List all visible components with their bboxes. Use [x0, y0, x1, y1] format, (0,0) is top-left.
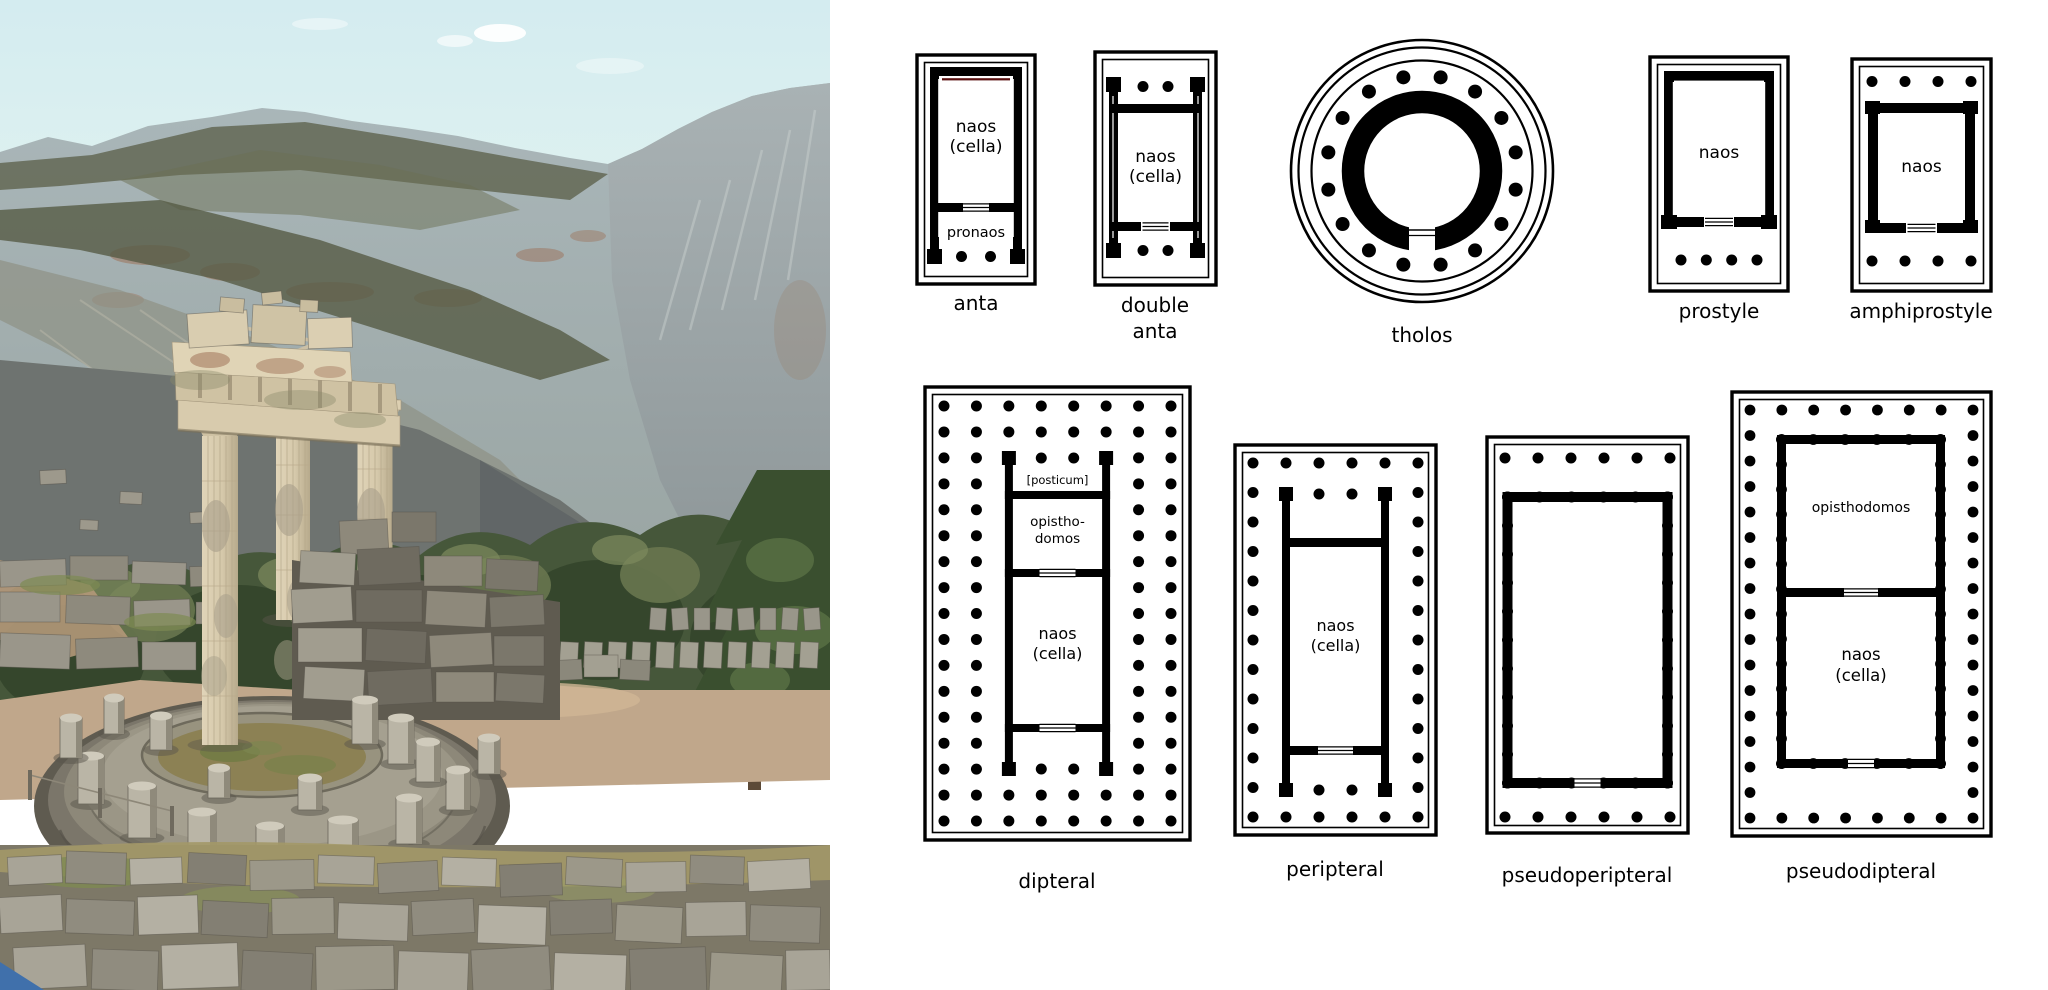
- floor-plan-pseudodipteral: opisthodomosnaos(cella): [1730, 390, 1993, 838]
- dipteral-plan-drawing: [posticum]opistho-domosnaos(cella): [923, 385, 1192, 842]
- floor-plan-prostyle: naos: [1648, 55, 1790, 293]
- plan-label-dipteral: dipteral: [1018, 868, 1095, 894]
- peripteral-plan-drawing: naos(cella): [1233, 443, 1438, 837]
- plan-label-tholos: tholos: [1392, 322, 1453, 348]
- floor-plan-anta: naos(cella)pronaos: [915, 53, 1037, 286]
- svg-text:domos: domos: [1035, 531, 1080, 547]
- plan-label-pseudoperipteral: pseudoperipteral: [1502, 862, 1673, 888]
- amphiprostyle-plan-drawing: naos: [1850, 57, 1993, 293]
- plan-label-pseudodipteral: pseudodipteral: [1786, 858, 1936, 884]
- anta-plan-drawing: naos(cella)pronaos: [915, 53, 1037, 286]
- floor-plan-double-anta: naos(cella): [1093, 50, 1218, 287]
- prostyle-plan-drawing: naos: [1648, 55, 1790, 293]
- svg-text:naos: naos: [1038, 624, 1076, 643]
- svg-text:opistho-: opistho-: [1030, 514, 1085, 530]
- svg-text:[posticum]: [posticum]: [1027, 473, 1089, 487]
- delphi-ruins-photo: [0, 0, 830, 990]
- svg-text:(cella): (cella): [1033, 644, 1083, 663]
- plan-label-anta: anta: [953, 290, 998, 316]
- floor-plan-peripteral: naos(cella): [1233, 443, 1438, 837]
- plan-label-double-anta: double anta: [1121, 292, 1189, 344]
- svg-text:naos: naos: [1316, 616, 1354, 635]
- svg-text:(cella): (cella): [1129, 167, 1182, 187]
- plan-label-prostyle: prostyle: [1679, 298, 1760, 324]
- svg-text:naos: naos: [1135, 147, 1176, 167]
- floor-plan-pseudoperipteral: [1485, 435, 1690, 835]
- svg-text:opisthodomos: opisthodomos: [1812, 500, 1911, 516]
- double-anta-plan-drawing: naos(cella): [1093, 50, 1218, 287]
- floor-plan-tholos: [1288, 37, 1556, 305]
- svg-text:(cella): (cella): [1311, 636, 1361, 655]
- photo-svg: [0, 0, 830, 990]
- svg-text:pronaos: pronaos: [947, 225, 1005, 241]
- plan-label-peripteral: peripteral: [1286, 856, 1384, 882]
- svg-text:naos: naos: [956, 117, 997, 137]
- foreground-blocks: [0, 842, 830, 990]
- svg-text:naos: naos: [1699, 143, 1740, 163]
- svg-text:(cella): (cella): [950, 137, 1003, 157]
- svg-text:naos: naos: [1901, 157, 1942, 177]
- tholos-plan-drawing: [1288, 37, 1556, 305]
- floor-plan-amphiprostyle: naos: [1850, 57, 1993, 293]
- svg-text:(cella): (cella): [1835, 666, 1886, 685]
- pseudoperipteral-plan-drawing: [1485, 435, 1690, 835]
- svg-text:naos: naos: [1841, 645, 1880, 664]
- pseudodipteral-plan-drawing: opisthodomosnaos(cella): [1730, 390, 1993, 838]
- plan-label-amphiprostyle: amphiprostyle: [1849, 298, 1992, 324]
- floor-plan-dipteral: [posticum]opistho-domosnaos(cella): [923, 385, 1192, 842]
- screenshot-root: naos(cella)pronaos anta naos(cella) doub…: [0, 0, 2048, 990]
